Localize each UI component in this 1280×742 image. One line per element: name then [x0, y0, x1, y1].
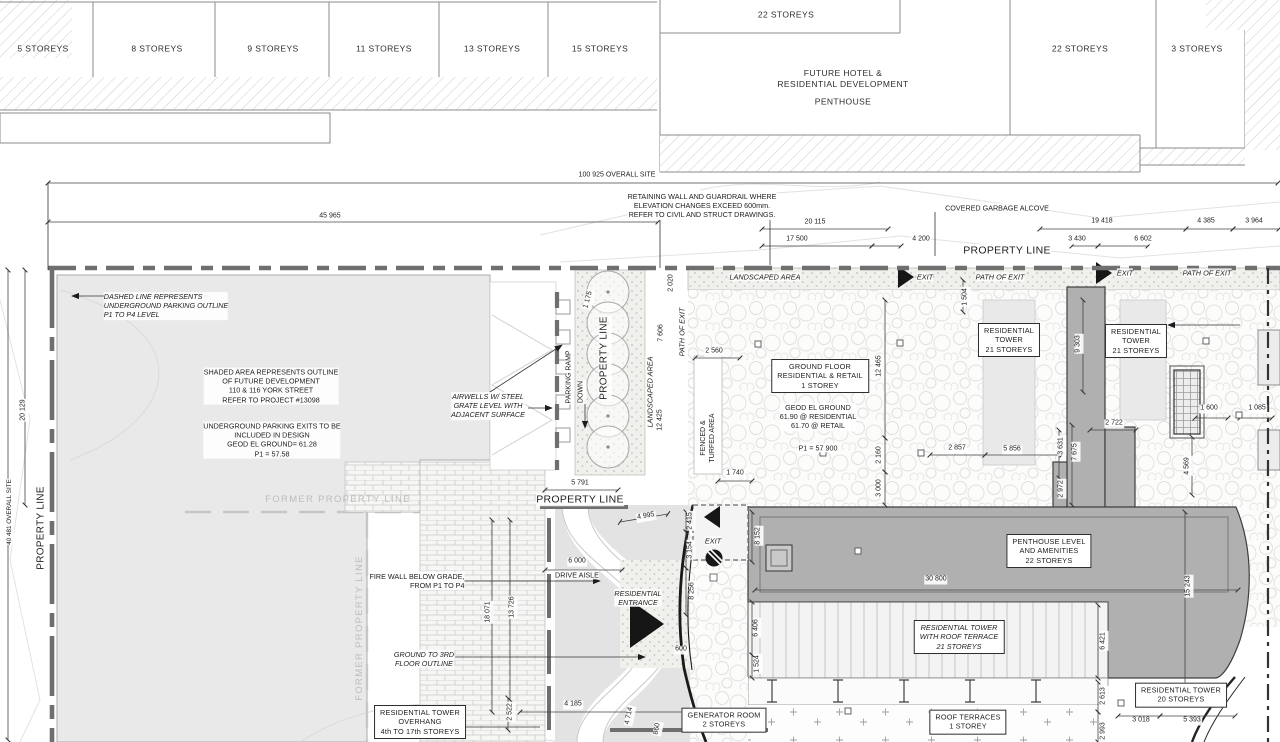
plan-label: 2 160 — [876, 445, 885, 465]
plan-label: PENTHOUSE LEVEL AND AMENITIES 22 STOREYS — [1006, 534, 1091, 568]
plan-label: PROPERTY LINE — [599, 316, 612, 400]
plan-label: 860 — [652, 721, 664, 736]
plan-label: 3 964 — [1244, 218, 1264, 227]
plan-label: 9 303 — [1075, 334, 1084, 354]
plan-label: RESIDENTIAL ENTRANCE — [614, 589, 661, 607]
plan-label: GEOD EL GROUND 61.90 @ RESIDENTIAL 61.70… — [780, 403, 856, 431]
plan-label: 4 995 — [636, 511, 657, 523]
plan-label: 2 613 — [1100, 686, 1109, 706]
plan-label: 6 602 — [1133, 236, 1153, 245]
plan-label: 1 600 — [1199, 405, 1219, 414]
plan-label: FORMER PROPERTY LINE — [354, 555, 366, 700]
plan-label: PATH OF EXIT — [677, 308, 686, 357]
plan-label: 1 524 — [754, 654, 763, 674]
plan-label: 3 STOREYS — [1171, 44, 1222, 55]
plan-label: AIRWELLS W/ STEEL GRATE LEVEL WITH ADJAC… — [451, 392, 525, 420]
plan-label: LANDSCAPED AREA — [645, 356, 654, 427]
plan-label: 4 569 — [1184, 456, 1193, 476]
plan-label: 22 STOREYS — [1052, 44, 1108, 55]
plan-label: 12 465 — [876, 354, 885, 377]
plan-label: 40 481 OVERALL SITE — [6, 479, 14, 545]
plan-label: 2 993 — [1100, 721, 1109, 741]
plan-label: 600 — [674, 646, 688, 655]
plan-label: COVERED GARBAGE ALCOVE — [945, 203, 1049, 212]
plan-label: DRIVE AISLE — [555, 570, 599, 579]
plan-label: 30 800 — [924, 576, 947, 585]
plan-label: SHADED AREA REPRESENTS OUTLINE OF FUTURE… — [204, 368, 339, 405]
plan-label: PATH OF EXIT — [1183, 268, 1232, 277]
plan-label: 8 152 — [755, 526, 764, 546]
plan-label: EXIT — [1117, 268, 1133, 277]
plan-label: PROPERTY LINE — [536, 493, 624, 506]
plan-label: 3 018 — [1131, 717, 1151, 726]
plan-label: 6 406 — [753, 618, 762, 638]
plan-label: 4 385 — [1196, 218, 1216, 227]
plan-label: 5 393 — [1182, 717, 1202, 726]
plan-label: 18 071 — [485, 600, 494, 623]
plan-label: 6 421 — [1100, 631, 1109, 651]
plan-label: RESIDENTIAL TOWER 21 STOREYS — [978, 323, 1040, 357]
plan-label: LANDSCAPED AREA — [729, 272, 800, 281]
plan-label: 5 791 — [570, 480, 590, 489]
plan-label: 1 175 — [582, 289, 596, 310]
plan-label: PATH OF EXIT — [976, 272, 1025, 281]
plan-label: 9 STOREYS — [247, 44, 298, 55]
plan-label: 11 STOREYS — [356, 44, 412, 55]
plan-label: RETAINING WALL AND GUARDRAIL WHERE ELEVA… — [628, 192, 777, 220]
plan-label: 3 430 — [1067, 236, 1087, 245]
plan-label: 19 418 — [1090, 218, 1113, 227]
plan-label: 7 606 — [658, 323, 667, 343]
plan-label: 3 000 — [876, 478, 885, 498]
plan-label: FUTURE HOTEL & RESIDENTIAL DEVELOPMENT — [777, 68, 908, 90]
plan-label: 4 185 — [563, 701, 583, 710]
plan-label: 15 STOREYS — [572, 44, 628, 55]
plan-label: 5 STOREYS — [17, 44, 68, 55]
plan-label: RESIDENTIAL TOWER 20 STOREYS — [1135, 683, 1227, 708]
plan-label: 2 522 — [507, 702, 516, 722]
plan-label: 4 200 — [911, 236, 931, 245]
plan-label: PROPERTY LINE — [36, 486, 49, 570]
plan-label: DASHED LINE REPRESENTS UNDERGROUND PARKI… — [104, 292, 228, 320]
plan-label: 6 000 — [567, 558, 587, 567]
plan-label: 13 STOREYS — [464, 44, 520, 55]
plan-label: GROUND TO 3RD FLOOR OUTLINE — [394, 650, 454, 668]
plan-label: 3 154 — [687, 540, 696, 560]
plan-label: 8 STOREYS — [131, 44, 182, 55]
plan-label: 5 856 — [1002, 446, 1022, 455]
plan-label: 12 425 — [657, 408, 666, 431]
plan-label: ROOF TERRACES 1 STOREY — [929, 710, 1006, 735]
plan-label: GROUND FLOOR RESIDENTIAL & RETAIL 1 STOR… — [771, 359, 869, 393]
plan-label: FENCED & TURFED AREA — [700, 412, 718, 463]
plan-label: GENERATOR ROOM 2 STOREYS — [681, 708, 766, 733]
plan-label: 100 925 OVERALL SITE — [578, 172, 657, 181]
plan-label: 1 740 — [725, 470, 745, 479]
plan-label: 7 675 — [1072, 442, 1081, 462]
label-layer: 5 STOREYS8 STOREYS9 STOREYS11 STOREYS13 … — [0, 0, 1280, 742]
plan-label: 2 857 — [947, 445, 967, 454]
plan-label: 3 631 — [1058, 436, 1067, 456]
plan-label: 2 972 — [1058, 479, 1067, 499]
plan-label: RESIDENTIAL TOWER WITH ROOF TERRACE 21 S… — [914, 620, 1005, 654]
plan-label: 45 965 — [318, 213, 341, 222]
plan-label: 2 020 — [668, 273, 677, 293]
plan-label: 15 243 — [1185, 574, 1194, 597]
plan-label: PENTHOUSE — [815, 97, 872, 108]
plan-label: 13 726 — [509, 595, 518, 618]
plan-label: 1 504 — [962, 287, 971, 307]
plan-label: 8 256 — [689, 581, 698, 601]
architectural-site-plan: 5 STOREYS8 STOREYS9 STOREYS11 STOREYS13 … — [0, 0, 1280, 742]
plan-label: EXIT — [705, 536, 721, 545]
plan-label: 4 714 — [624, 706, 637, 727]
plan-label: 2 722 — [1104, 420, 1124, 429]
plan-label: FORMER PROPERTY LINE — [265, 494, 410, 506]
plan-label: PROPERTY LINE — [963, 244, 1051, 257]
plan-label: RESIDENTIAL TOWER OVERHANG 4th TO 17th S… — [374, 705, 466, 739]
plan-label: 20 129 — [20, 398, 29, 421]
plan-label: 1 085 — [1247, 405, 1267, 414]
plan-label: DOWN — [578, 380, 587, 404]
plan-label: 2 415 — [687, 511, 696, 531]
plan-label: 22 STOREYS — [758, 10, 814, 21]
plan-label: 20 115 — [804, 219, 827, 228]
plan-label: 2 560 — [704, 348, 724, 357]
plan-label: P1 = 57 900 — [799, 443, 838, 452]
plan-label: FIRE WALL BELOW GRADE, FROM P1 TO P4 — [370, 572, 465, 590]
plan-label: RESIDENTIAL TOWER 21 STOREYS — [1105, 324, 1167, 358]
plan-label: PARKING RAMP — [566, 349, 575, 404]
plan-label: 17 500 — [785, 236, 808, 245]
plan-label: UNDERGROUND PARKING EXITS TO BE INCLUDED… — [203, 422, 340, 459]
plan-label: EXIT — [917, 272, 933, 281]
